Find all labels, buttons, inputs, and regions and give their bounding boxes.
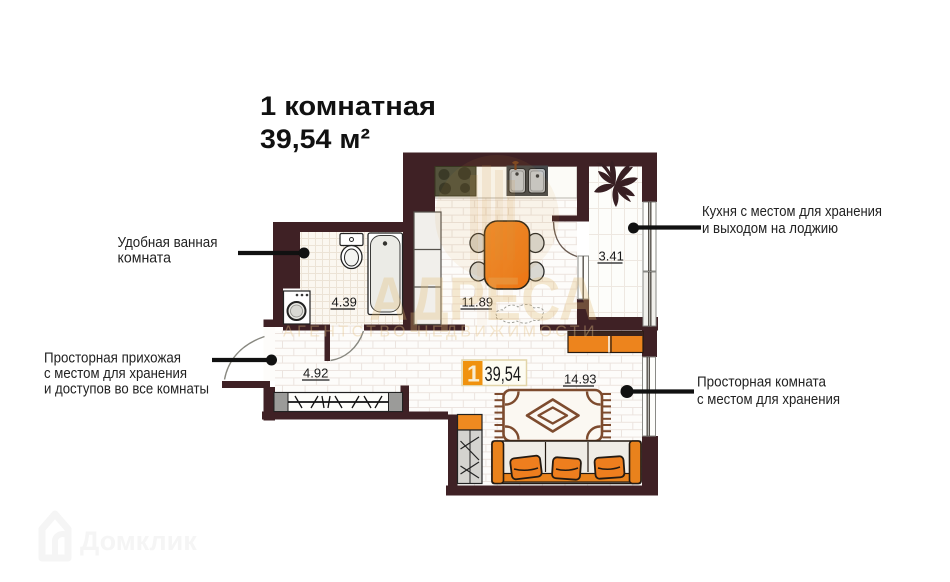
svg-text:Просторная прихожая: Просторная прихожая xyxy=(44,351,181,367)
svg-text:1: 1 xyxy=(467,361,480,387)
svg-text:и выходом на лоджию: и выходом на лоджию xyxy=(702,221,838,237)
svg-text:1 комнатная: 1 комнатная xyxy=(260,91,436,121)
svg-text:3.41: 3.41 xyxy=(599,249,624,264)
svg-text:с местом для хранения: с местом для хранения xyxy=(44,366,187,382)
svg-text:и доступов во все комнаты: и доступов во все комнаты xyxy=(44,382,209,398)
svg-text:Домклик: Домклик xyxy=(80,526,197,556)
svg-text:39,54 м²: 39,54 м² xyxy=(260,124,370,154)
svg-text:Просторная комната: Просторная комната xyxy=(697,375,827,391)
svg-text:4.39: 4.39 xyxy=(332,295,357,310)
svg-text:Удобная ванная: Удобная ванная xyxy=(118,235,218,251)
svg-text:АГЕНТСТВО НЕДВИЖИМОСТИ: АГЕНТСТВО НЕДВИЖИМОСТИ xyxy=(283,324,598,341)
svg-text:Кухня с местом для хранения: Кухня с местом для хранения xyxy=(702,204,882,220)
svg-text:39,54: 39,54 xyxy=(485,363,522,386)
svg-text:комната: комната xyxy=(118,251,172,267)
svg-text:14.93: 14.93 xyxy=(564,372,597,387)
svg-text:4.92: 4.92 xyxy=(303,366,328,381)
svg-text:с местом для хранения: с местом для хранения xyxy=(697,392,840,408)
